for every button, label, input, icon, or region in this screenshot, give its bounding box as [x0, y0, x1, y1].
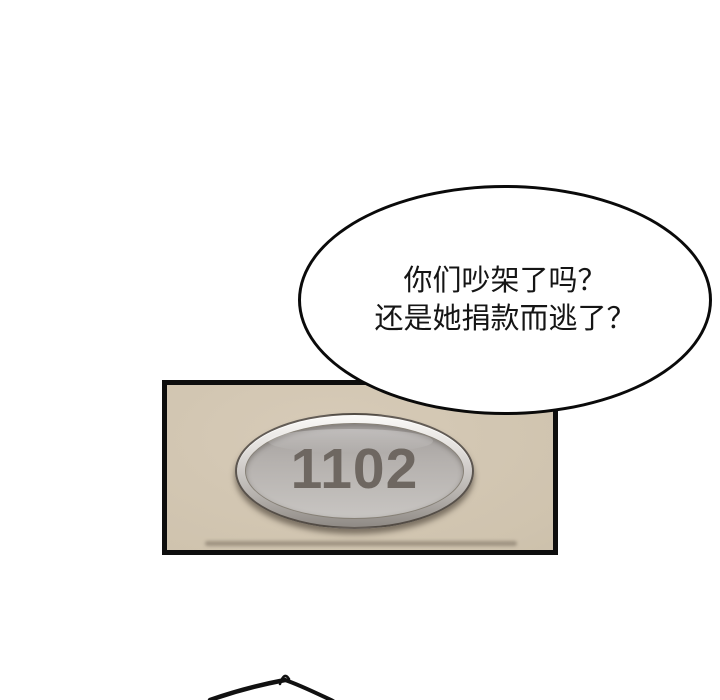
- comic-page: 1102 你们吵架了吗？ 还是她捐款而逃了？: [0, 0, 720, 700]
- speech-bubble: 你们吵架了吗？ 还是她捐款而逃了？: [298, 185, 712, 415]
- panel-bottom-shadow: [205, 541, 517, 546]
- door-number: 1102: [237, 415, 472, 527]
- head-outline-sketch: [196, 655, 436, 700]
- speech-bubble-line-2: 还是她捐款而逃了？: [374, 300, 635, 338]
- door-number-plate: 1102: [235, 413, 474, 529]
- speech-bubble-line-1: 你们吵架了吗？: [403, 262, 606, 300]
